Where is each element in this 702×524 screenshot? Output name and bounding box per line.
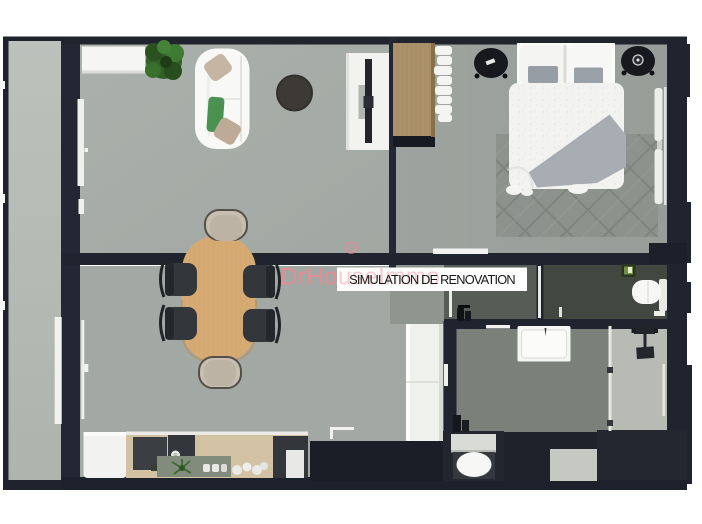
svg-text:SIMULATION DE RENOVATION: SIMULATION DE RENOVATION bbox=[349, 272, 515, 287]
svg-text:c: c bbox=[349, 243, 354, 253]
